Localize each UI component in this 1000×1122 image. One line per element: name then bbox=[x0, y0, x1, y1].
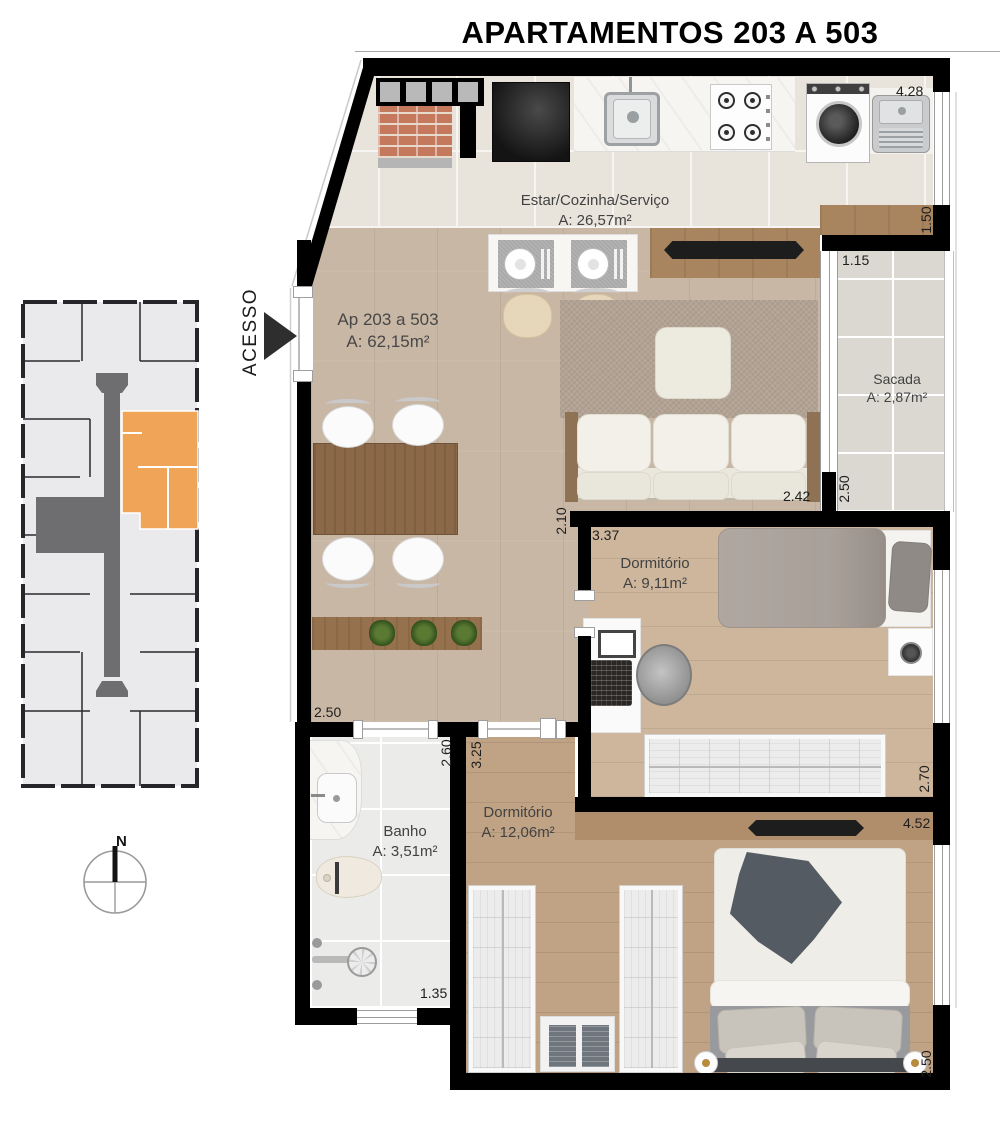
wall-right bbox=[933, 527, 950, 570]
wall-right bbox=[933, 205, 950, 237]
access-label: ACESSO bbox=[240, 277, 262, 387]
access-arrow-icon bbox=[264, 312, 297, 360]
room-name: Estar/Cozinha/Serviço bbox=[470, 191, 720, 211]
room-area: A: 2,87m² bbox=[835, 388, 959, 406]
door-opening-line bbox=[488, 728, 540, 730]
wall-right bbox=[933, 1005, 950, 1090]
window-bathroom bbox=[357, 1010, 417, 1024]
room-area: A: 9,11m² bbox=[575, 574, 735, 594]
dim-bathroom-side: 2.60 bbox=[439, 731, 453, 775]
door-jamb bbox=[556, 720, 566, 739]
dim-kitchen-top: 4.28 bbox=[896, 84, 923, 98]
wall-bedroom1-bottom bbox=[575, 797, 950, 812]
wall-balcony-side bbox=[822, 472, 836, 513]
dim-balcony-top: 1.15 bbox=[842, 253, 869, 267]
wall-top bbox=[363, 58, 950, 76]
room-name: Dormitório bbox=[438, 803, 598, 823]
wall-bathroom-bottom bbox=[295, 1008, 357, 1025]
dim-living-bottom: 2.50 bbox=[314, 705, 341, 719]
unit-area: A: 62,15m² bbox=[288, 331, 488, 353]
dim-bedroom1-side: 2.10 bbox=[554, 499, 568, 543]
door-jamb bbox=[293, 286, 313, 298]
dim-bedroom1-right: 2.70 bbox=[917, 757, 931, 801]
room-label-balcony: Sacada A: 2,87m² bbox=[835, 370, 959, 406]
dim-bedroom2-right: 2.50 bbox=[919, 1042, 933, 1086]
wall-hall bbox=[566, 722, 590, 737]
dim-service-side: 1.50 bbox=[919, 198, 933, 242]
room-area: A: 12,06m² bbox=[438, 823, 598, 843]
dim-bedroom2-top: 4.52 bbox=[903, 816, 930, 830]
door-opening-line bbox=[363, 728, 428, 730]
door-jamb bbox=[428, 720, 438, 739]
room-label-bedroom1: Dormitório A: 9,11m² bbox=[575, 554, 735, 593]
room-label-bedroom2: Dormitório A: 12,06m² bbox=[438, 803, 598, 842]
dim-bedroom1-top: 3.37 bbox=[592, 528, 619, 542]
dim-balcony-side: 2.50 bbox=[837, 467, 851, 511]
key-plan bbox=[20, 299, 200, 789]
room-area: A: 26,57m² bbox=[470, 211, 720, 231]
unit-label: Ap 203 a 503 A: 62,15m² bbox=[288, 309, 488, 353]
wall-living-left bbox=[297, 240, 311, 288]
room-name: Dormitório bbox=[575, 554, 735, 574]
unit-name: Ap 203 a 503 bbox=[288, 309, 488, 331]
window-bedroom1 bbox=[934, 570, 950, 723]
dim-living-right: 2.42 bbox=[783, 489, 810, 503]
door-jamb bbox=[293, 370, 313, 382]
floor-plan-canvas: APARTAMENTOS 203 A 503 bbox=[0, 0, 1000, 1122]
room-area: A: 3,51m² bbox=[330, 842, 480, 862]
wall-bedroom2-left bbox=[450, 737, 466, 1090]
wall-bedroom1-top bbox=[570, 511, 950, 527]
wall-right bbox=[933, 812, 950, 845]
dim-bedroom2-side-top: 3.25 bbox=[469, 733, 483, 777]
north-label: N bbox=[116, 833, 127, 850]
wall-living-left bbox=[297, 382, 311, 722]
room-name: Sacada bbox=[835, 370, 959, 388]
wall-bathroom-left bbox=[295, 737, 310, 1025]
room-label-kitchen: Estar/Cozinha/Serviço A: 26,57m² bbox=[470, 191, 720, 230]
wall-right bbox=[933, 58, 950, 92]
window-service bbox=[934, 92, 950, 205]
dim-bathroom-bottom: 1.35 bbox=[420, 986, 447, 1000]
wall-hall bbox=[295, 722, 353, 737]
wall-bedroom2-bottom bbox=[450, 1073, 950, 1090]
door-leaf bbox=[540, 718, 556, 739]
wall-bedroom1-left bbox=[578, 636, 591, 797]
window-bedroom2 bbox=[934, 845, 950, 1005]
door-jamb bbox=[353, 720, 363, 739]
